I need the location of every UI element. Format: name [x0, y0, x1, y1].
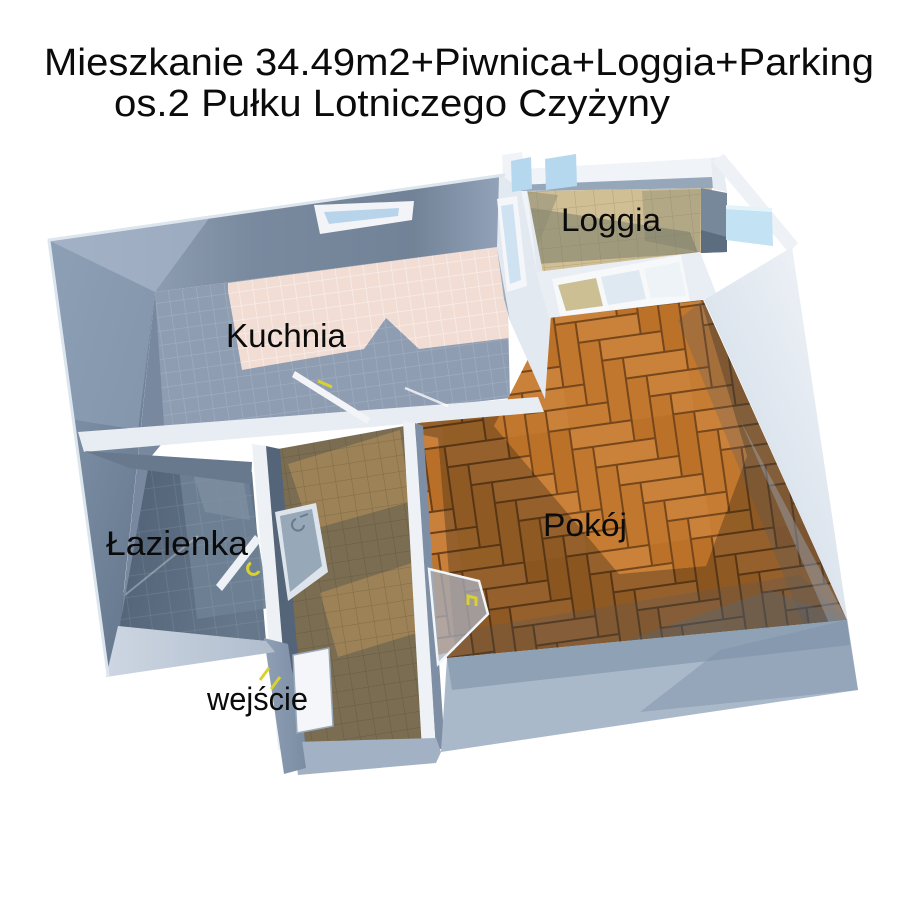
svg-text:Loggia: Loggia	[561, 202, 661, 238]
svg-text:os.2 Pułku Lotniczego Czyżyny: os.2 Pułku Lotniczego Czyżyny	[114, 83, 670, 125]
svg-text:Mieszkanie 34.49m2+Piwnica+Log: Mieszkanie 34.49m2+Piwnica+Loggia+Parkin…	[44, 42, 874, 84]
svg-text:Kuchnia: Kuchnia	[226, 317, 347, 354]
svg-text:Pokój: Pokój	[543, 507, 627, 543]
svg-text:Łazienka: Łazienka	[106, 525, 248, 563]
svg-text:wejście: wejście	[206, 681, 308, 717]
